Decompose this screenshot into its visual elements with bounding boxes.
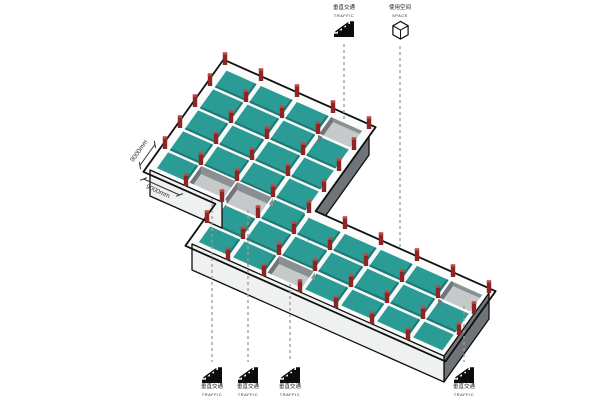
callout-label-zh: 垂直交通 — [333, 5, 355, 12]
callout-traffic-bottom-3: 垂直交通 TRAFFIC — [258, 365, 322, 397]
column-cap — [457, 322, 461, 325]
column — [364, 253, 368, 266]
callout-space-top: 使用空间 SPACE — [368, 5, 432, 41]
callout-label-en: TRAFFIC — [454, 392, 474, 397]
column-cap — [472, 301, 476, 304]
column-cap — [334, 295, 338, 298]
column-cap — [262, 263, 266, 266]
column-cap — [385, 290, 389, 293]
column-cap — [415, 248, 419, 251]
column-cap — [364, 253, 368, 256]
column — [334, 295, 338, 308]
column-cap — [400, 269, 404, 272]
column-cap — [328, 237, 332, 240]
column-cap — [193, 94, 197, 97]
column — [295, 84, 299, 97]
column-cap — [349, 274, 353, 277]
column — [241, 226, 245, 239]
column — [331, 100, 335, 113]
column — [406, 327, 410, 340]
column-shaft — [367, 117, 371, 129]
column — [352, 137, 356, 150]
column-shaft — [244, 90, 248, 102]
callout-label-en: TRAFFIC — [334, 13, 354, 18]
column — [259, 68, 263, 81]
column — [244, 89, 248, 102]
column — [271, 184, 275, 197]
callout-label-zh: 垂直交通 — [453, 384, 475, 391]
column-cap — [298, 279, 302, 282]
column — [250, 147, 254, 160]
cube-icon — [391, 20, 410, 41]
column-cap — [379, 232, 383, 235]
column — [265, 126, 269, 139]
column — [379, 232, 383, 245]
callout-label-zh: 使用空间 — [389, 5, 411, 12]
column — [367, 116, 371, 129]
callout-traffic-top: 垂直交通 TRAFFIC — [312, 5, 376, 37]
callout-label-en: TRAFFIC — [280, 392, 300, 397]
column-cap — [286, 163, 290, 166]
column — [184, 173, 188, 186]
column — [223, 52, 227, 65]
column-shaft — [316, 122, 320, 134]
column — [280, 105, 284, 118]
column-shaft — [208, 74, 212, 86]
column — [286, 163, 290, 176]
column — [400, 269, 404, 282]
column — [349, 274, 353, 287]
column — [256, 205, 260, 218]
dimension-tick — [154, 141, 155, 148]
column-cap — [178, 115, 182, 118]
column — [307, 200, 311, 213]
column — [208, 73, 212, 86]
column — [337, 158, 341, 171]
dimension-label: 9000mm — [129, 139, 149, 164]
column-cap — [322, 179, 326, 182]
column-shaft — [295, 85, 299, 97]
column-cap — [214, 131, 218, 134]
column — [262, 263, 266, 276]
column — [214, 131, 218, 144]
column-cap — [367, 116, 371, 119]
column-cap — [220, 189, 224, 192]
building-axonometric-canvas: 9000mm9000mm — [0, 0, 600, 410]
column-cap — [487, 280, 491, 283]
column — [298, 279, 302, 292]
column — [370, 311, 374, 324]
column-cap — [244, 89, 248, 92]
callout-label-en: SPACE — [392, 13, 408, 18]
column — [316, 121, 320, 134]
callout-traffic-bottom-4: 垂直交通 TRAFFIC — [432, 365, 496, 397]
column-shaft — [178, 116, 182, 128]
column-shaft — [331, 101, 335, 113]
stairs-icon — [454, 366, 474, 383]
column — [487, 280, 491, 293]
column-cap — [241, 226, 245, 229]
column — [193, 94, 197, 107]
column-cap — [259, 68, 263, 71]
column — [277, 242, 281, 255]
column-cap — [343, 216, 347, 219]
column-cap — [370, 311, 374, 314]
column-shaft — [229, 111, 233, 123]
column-cap — [277, 242, 281, 245]
column-cap — [250, 147, 254, 150]
column — [235, 168, 239, 181]
column — [220, 189, 224, 202]
column — [226, 247, 230, 260]
column-cap — [229, 110, 233, 113]
column-shaft — [259, 69, 263, 81]
column-cap — [235, 168, 239, 171]
column — [385, 290, 389, 303]
column — [328, 237, 332, 250]
column-cap — [451, 264, 455, 267]
column-cap — [223, 52, 227, 55]
stairs-icon — [334, 20, 354, 37]
column-shaft — [280, 106, 284, 118]
column-cap — [316, 121, 320, 124]
column — [415, 248, 419, 261]
dimension-tick — [139, 162, 140, 169]
column-cap — [301, 142, 305, 145]
column — [205, 210, 209, 223]
column-cap — [256, 205, 260, 208]
callout-label-zh: 垂直交通 — [279, 384, 301, 391]
column — [451, 264, 455, 277]
axonometric-diagram-page: 9000mm9000mm 垂直交通 TRAFFIC 使用空间 SPACE 垂直交… — [0, 0, 600, 410]
column — [436, 285, 440, 298]
column-cap — [208, 73, 212, 76]
column — [301, 142, 305, 155]
column-cap — [163, 136, 167, 139]
column-cap — [337, 158, 341, 161]
column — [199, 152, 203, 165]
column — [343, 216, 347, 229]
column-cap — [184, 173, 188, 176]
column-cap — [295, 84, 299, 87]
column — [163, 136, 167, 149]
column-cap — [226, 247, 230, 250]
column-cap — [307, 200, 311, 203]
column-cap — [199, 152, 203, 155]
column — [322, 179, 326, 192]
column — [472, 301, 476, 314]
column — [229, 110, 233, 123]
column-cap — [406, 327, 410, 330]
column-cap — [331, 100, 335, 103]
column-cap — [292, 221, 296, 224]
callout-label-zh: 垂直交通 — [237, 384, 259, 391]
column — [313, 258, 317, 271]
column-cap — [436, 285, 440, 288]
column — [178, 115, 182, 128]
column — [292, 221, 296, 234]
column-cap — [280, 105, 284, 108]
stairs-icon — [280, 366, 300, 383]
column-cap — [271, 184, 275, 187]
column-shaft — [193, 95, 197, 107]
callout-label-en: TRAFFIC — [238, 392, 258, 397]
column — [457, 322, 461, 335]
column — [421, 306, 425, 319]
column-cap — [265, 126, 269, 129]
column-cap — [352, 137, 356, 140]
column-cap — [205, 210, 209, 213]
stairs-icon — [238, 366, 258, 383]
column-cap — [421, 306, 425, 309]
column-cap — [313, 258, 317, 261]
